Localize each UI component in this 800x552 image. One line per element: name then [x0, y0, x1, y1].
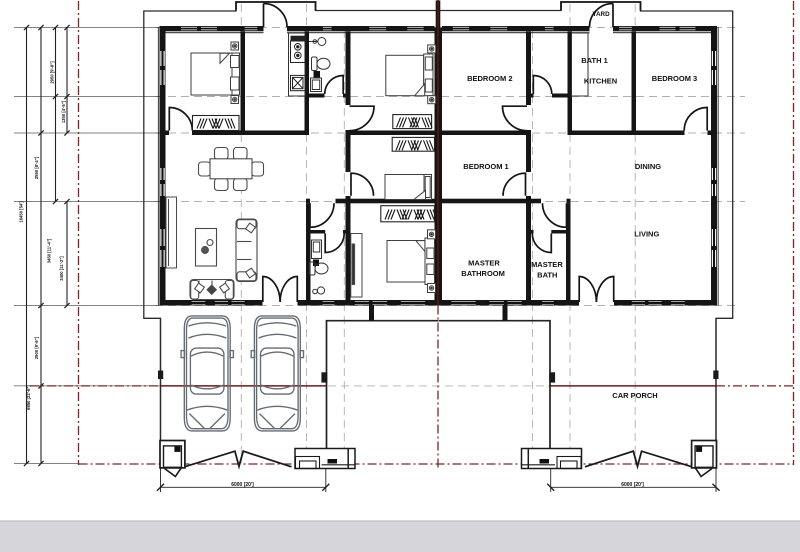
svg-text:KITCHEN: KITCHEN [584, 76, 617, 85]
svg-text:BEDROOM 3: BEDROOM 3 [652, 74, 697, 83]
svg-text:2900 [9'-6"]: 2900 [9'-6"] [34, 336, 39, 359]
svg-text:BEDROOM 1: BEDROOM 1 [463, 162, 508, 171]
svg-text:LIVING: LIVING [634, 230, 659, 239]
svg-text:6850 [22'-6"]: 6850 [22'-6"] [26, 385, 31, 410]
svg-text:2550 [8'-4"]: 2550 [8'-4"] [34, 156, 39, 179]
svg-text:6000 [20']: 6000 [20'] [621, 482, 644, 488]
svg-text:6000 [20']: 6000 [20'] [231, 482, 254, 488]
svg-text:3400 [11'-2"]: 3400 [11'-2"] [59, 256, 64, 281]
svg-text:YARD: YARD [592, 11, 610, 18]
svg-text:CAR PORCH: CAR PORCH [612, 391, 657, 400]
svg-text:BATHROOM: BATHROOM [461, 269, 505, 278]
svg-text:16450 [54']: 16450 [54'] [19, 201, 24, 223]
svg-text:1350 [4'-5"]: 1350 [4'-5"] [61, 100, 66, 123]
svg-text:BATH 1: BATH 1 [581, 56, 608, 65]
svg-text:MASTER: MASTER [531, 260, 563, 269]
svg-text:3450 [11'-4"]: 3450 [11'-4"] [47, 238, 52, 263]
svg-text:BEDROOM 2: BEDROOM 2 [467, 74, 512, 83]
svg-text:MASTER: MASTER [468, 258, 500, 267]
svg-text:DINING: DINING [635, 162, 661, 171]
svg-text:BATH: BATH [537, 270, 557, 279]
svg-text:2950 [9'-8"]: 2950 [9'-8"] [50, 61, 55, 84]
